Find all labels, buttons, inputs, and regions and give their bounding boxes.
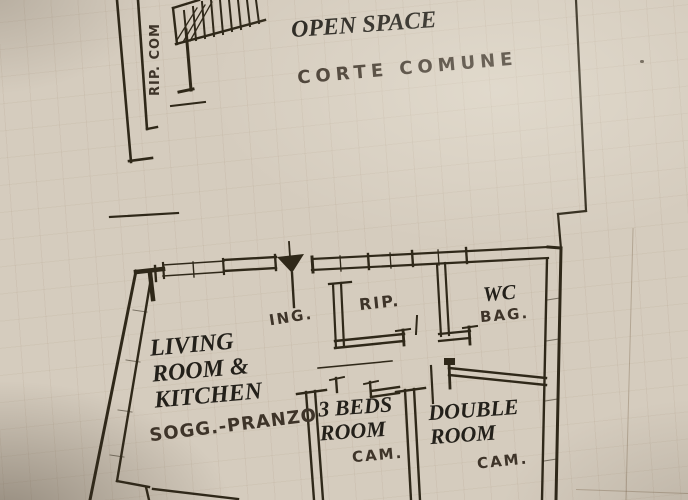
three-beds-room-label: 3 BEDS ROOM	[317, 392, 394, 445]
beds-line-2: ROOM	[319, 416, 394, 445]
storage-room-walls	[329, 282, 417, 348]
double-room-label: DOUBLE ROOM	[427, 395, 521, 449]
paper-speck	[640, 60, 644, 63]
entrance-arrow-icon	[277, 242, 304, 307]
rip-com-label: RIP. COM	[148, 23, 163, 96]
staircase-icon	[171, 0, 265, 106]
living-room-kitchen-label: LIVING ROOM & KITCHEN	[149, 327, 263, 414]
wc-label: WC	[482, 281, 517, 306]
wc-walls	[437, 263, 477, 344]
floor-plan-scan: RIP. COM OPEN SPACE CORTE COMUNE ING. RI…	[0, 0, 688, 500]
